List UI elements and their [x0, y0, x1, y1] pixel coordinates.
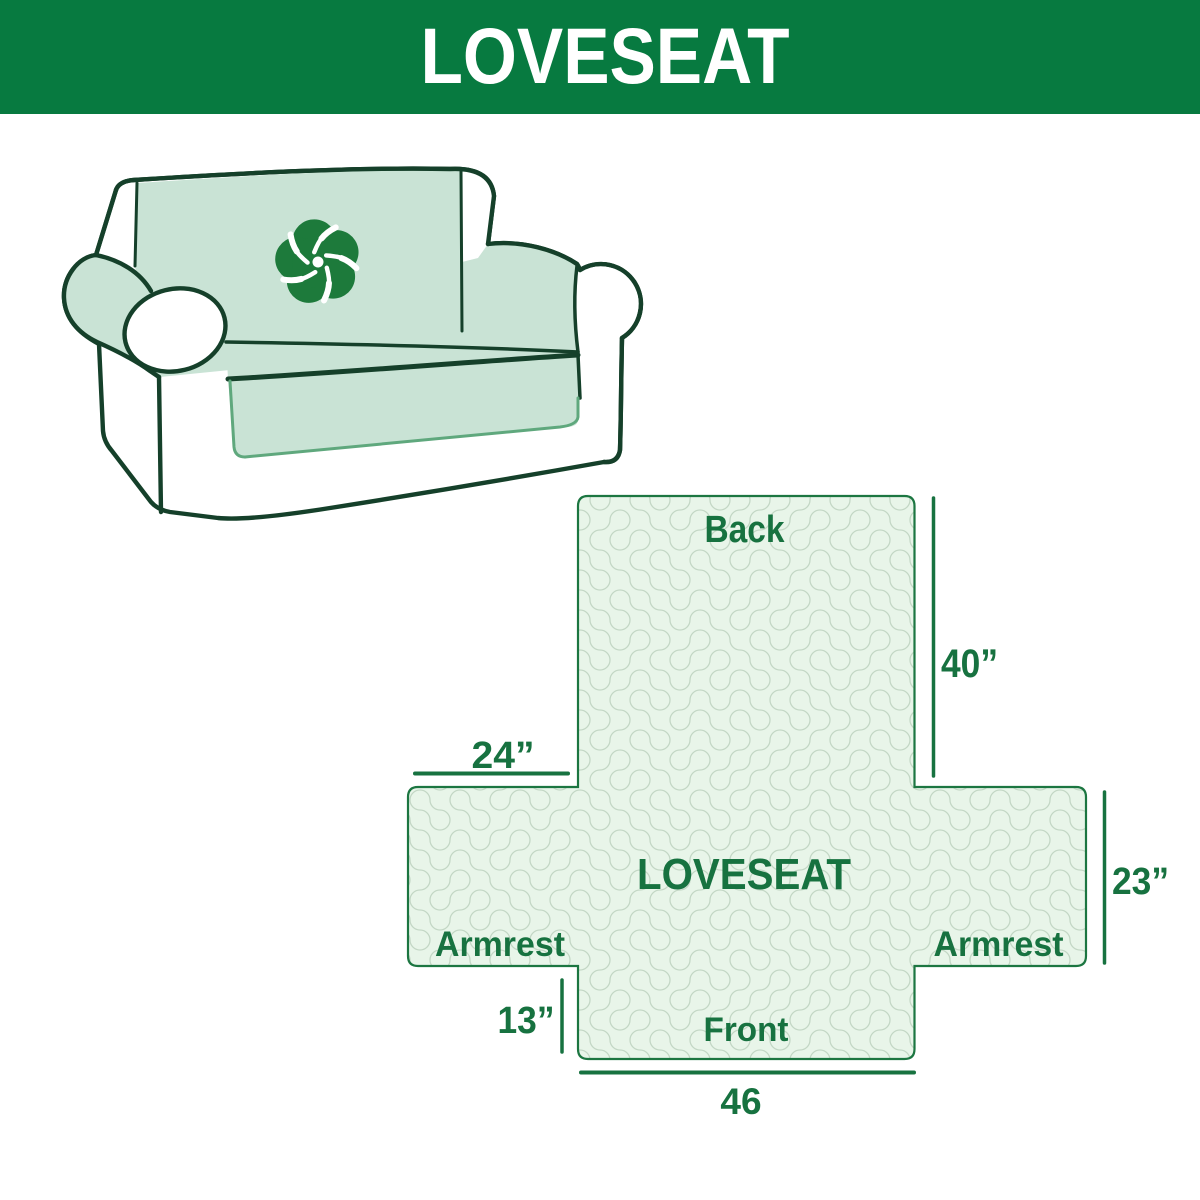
svg-text:LOVESEAT: LOVESEAT: [637, 850, 851, 899]
svg-text:46: 46: [720, 1081, 761, 1122]
svg-text:Armrest: Armrest: [934, 925, 1064, 964]
svg-text:Armrest: Armrest: [435, 925, 565, 964]
svg-text:LOVESEAT: LOVESEAT: [421, 11, 790, 100]
svg-text:13”: 13”: [498, 1000, 555, 1042]
svg-text:Back: Back: [705, 509, 786, 551]
svg-text:24”: 24”: [472, 735, 535, 777]
svg-text:23”: 23”: [1112, 861, 1169, 903]
svg-text:Front: Front: [704, 1011, 789, 1049]
svg-text:40”: 40”: [941, 642, 998, 686]
